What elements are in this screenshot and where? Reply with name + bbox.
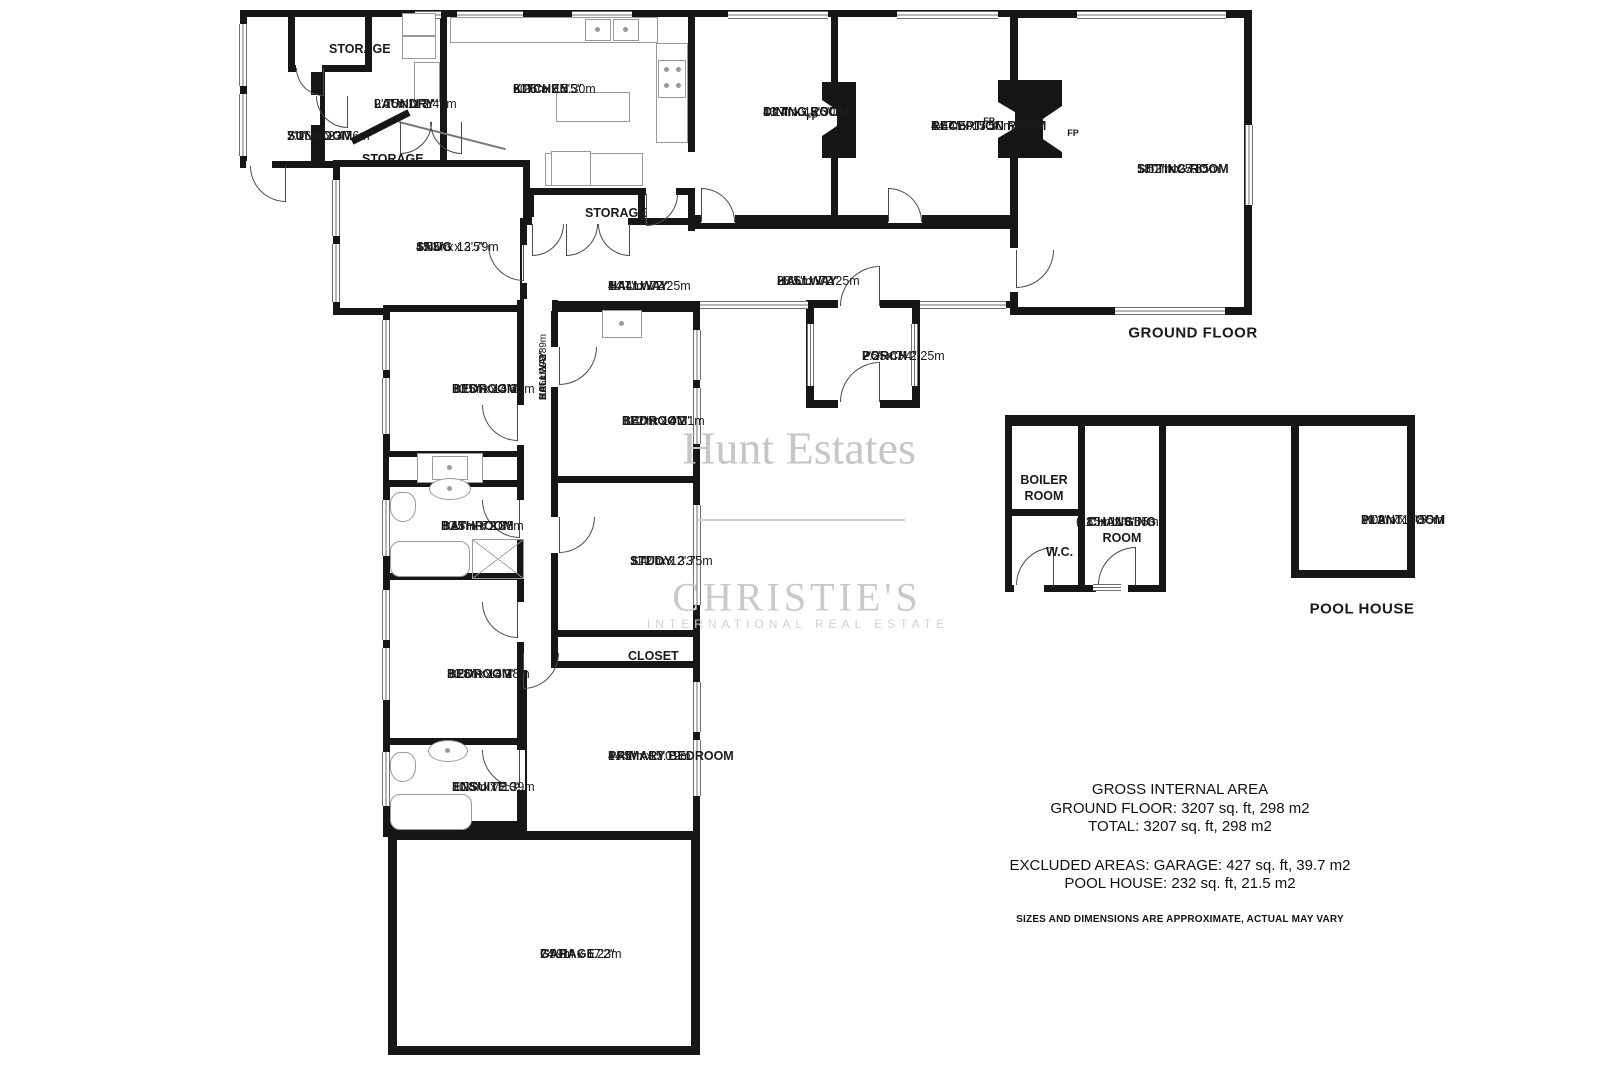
fireplace-label-reception: FP (983, 116, 995, 126)
room-dimensions-m: 5.52m x 7.65m (1137, 161, 1220, 177)
room-dimensions-m: 3.26m x 4.18m (447, 666, 530, 682)
room-name: BOILER ROOM (1015, 472, 1073, 504)
window (382, 648, 390, 700)
room-dimensions-m: 4.14m x 5.30m (763, 104, 846, 120)
room-dimensions-m: 2.75m x 3.41m (374, 96, 457, 112)
wall-opening (524, 299, 552, 311)
window (1245, 125, 1253, 205)
room-dimensions-m: 3.18m x 2.38m (441, 518, 524, 534)
room-name: W.C. (1046, 544, 1073, 560)
door-arc (250, 166, 286, 202)
window (920, 301, 1006, 309)
room-dimensions-m: 3.40m x 4.31m (622, 413, 705, 429)
room-dimensions-m: 7'59m x 5.23m (540, 946, 622, 962)
window (700, 301, 808, 309)
room-dimensions-m: 4.65m x 3.79m (416, 239, 499, 255)
sink-dot-fixture (619, 321, 624, 326)
sink-dot-fixture (447, 465, 452, 470)
room-bedroom-b (383, 573, 524, 745)
burner-fixture (676, 83, 681, 88)
window (239, 94, 247, 156)
room-snug (333, 160, 530, 315)
summary-total: TOTAL: 3207 sq. ft, 298 m2 (990, 818, 1370, 837)
room-dimensions-m: 3.25m x 2.39m (452, 779, 535, 795)
summary-excluded: EXCLUDED AREAS: GARAGE: 427 sq. ft, 39.7… (990, 857, 1370, 876)
ground-floor-caption: GROUND FLOOR (1128, 325, 1257, 342)
room-dimensions-m: 4.44m x 5.30m (931, 118, 1014, 134)
shower-fixture (472, 539, 524, 579)
room-garage (388, 831, 700, 1055)
room-dimensions-m: 3.40m x 3.75m (630, 553, 713, 569)
pool-house-caption: POOL HOUSE (1310, 601, 1415, 618)
room-name: STORAGE (362, 151, 424, 167)
window (1115, 307, 1225, 315)
bathtub-fixture (390, 794, 472, 830)
room-dimensions-m: 6.26m x 5.30m (513, 81, 596, 97)
burner-fixture (664, 67, 669, 72)
room-name: CLOSET (628, 648, 679, 664)
watermark-partner: CHRISTIE'S (672, 574, 921, 621)
room-dimensions-m: 3.09m x 3.55m (1361, 512, 1444, 528)
room-dimensions-m: 4.44m x 2.25m (608, 278, 691, 294)
window (1093, 584, 1121, 591)
wall (1005, 415, 1415, 426)
watermark-divider (698, 519, 905, 521)
toilet-fixture (390, 492, 416, 522)
window (239, 24, 247, 86)
room-name: STORAGE (329, 41, 391, 57)
room-plant-room (1291, 415, 1415, 578)
window (807, 324, 814, 386)
room-dimensions-m: 2.25m x 2.25m (862, 348, 945, 364)
burner-fixture (664, 83, 669, 88)
summary-disclaimer: SIZES AND DIMENSIONS ARE APPROXIMATE, AC… (990, 911, 1370, 930)
bathtub-fixture (390, 541, 470, 577)
room-dimensions-m: 4.41m x 5.19m (608, 748, 691, 764)
watermark-brand: Hunt Estates (682, 422, 916, 475)
burner-fixture (676, 67, 681, 72)
window (382, 590, 390, 640)
room-name: STORAGE (585, 205, 647, 221)
appliance-fixture (402, 36, 436, 59)
window (382, 320, 390, 370)
floor-plan-canvas: SUNROOM7'1" x 12'4"2.16m x 3.76mSTORAGEL… (0, 0, 1600, 1066)
room-dimensions-m: 2.16m x 3.76m (287, 128, 370, 144)
window (1077, 11, 1226, 19)
room-dimensions-m: 1.06m x 8.89m (538, 334, 551, 400)
cooktop-fixture (658, 60, 686, 98)
window (693, 330, 701, 380)
window (332, 244, 340, 302)
fireplace-label-sitting: FP (1067, 128, 1079, 138)
sink-dot-fixture (595, 27, 600, 32)
window (693, 682, 701, 732)
wall-opening (687, 152, 697, 188)
appliance-fixture (551, 151, 591, 186)
window (332, 180, 340, 236)
appliance-fixture (402, 13, 436, 36)
window (897, 11, 998, 19)
area-summary: GROSS INTERNAL AREA GROUND FLOOR: 3207 s… (990, 781, 1370, 929)
fireplace-label-dining: FP (806, 112, 818, 122)
sink-dot-fixture (445, 748, 450, 753)
room-dimensions-m: 8.66m x 2.25m (777, 273, 860, 289)
window (382, 752, 390, 806)
room-dimensions-m: 1.85m x 3.55m (1076, 514, 1159, 530)
sink-dot-fixture (447, 486, 452, 491)
summary-title: GROSS INTERNAL AREA (990, 781, 1370, 800)
summary-pool-house: POOL HOUSE: 232 sq. ft, 21.5 m2 (990, 875, 1370, 894)
window (728, 11, 828, 19)
sink-dot-fixture (623, 27, 628, 32)
window (382, 500, 390, 556)
summary-ground-floor: GROUND FLOOR: 3207 sq. ft, 298 m2 (990, 800, 1370, 819)
toilet-fixture (390, 752, 416, 782)
window (382, 378, 390, 434)
room-dimensions-m: 3.18m x 4.12m (452, 381, 535, 397)
